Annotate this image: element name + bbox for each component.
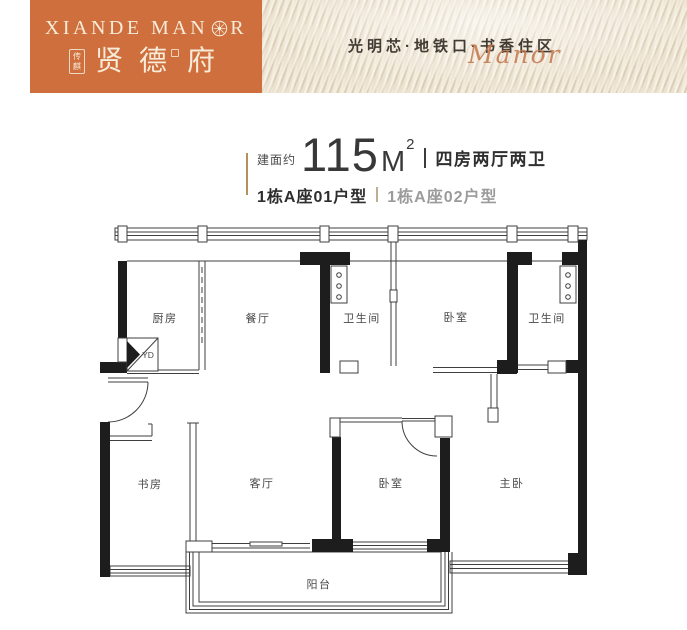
room-label-study: 书房 — [138, 478, 163, 491]
room-label-bath-2: 卫生间 — [528, 311, 566, 325]
door-arcs — [108, 382, 437, 456]
flue-label: YD — [142, 350, 154, 360]
floor-plan: YD 厨房 餐厅 卫生间 卧室 卫生间 书房 客厅 卧室 主卧 阳台 — [0, 0, 687, 630]
room-label-master-bedroom: 主卧 — [500, 477, 525, 490]
room-label-kitchen: 厨房 — [153, 312, 178, 325]
flyer-page: XIANDE MAN R 传 麒 贤 — [0, 0, 687, 630]
entry-door-arc — [108, 382, 148, 422]
room-label-dining: 餐厅 — [246, 311, 271, 325]
room-label-balcony: 阳台 — [307, 577, 332, 591]
room-label-bedroom-1: 卧室 — [444, 310, 469, 324]
bath-fixtures — [331, 266, 576, 303]
room-label-living: 客厅 — [250, 476, 275, 490]
flue-symbol: YD — [127, 338, 158, 371]
bedroom2-door-arc — [402, 421, 437, 456]
room-label-bath-1: 卫生间 — [343, 311, 381, 325]
room-label-bedroom-2: 卧室 — [379, 476, 404, 490]
